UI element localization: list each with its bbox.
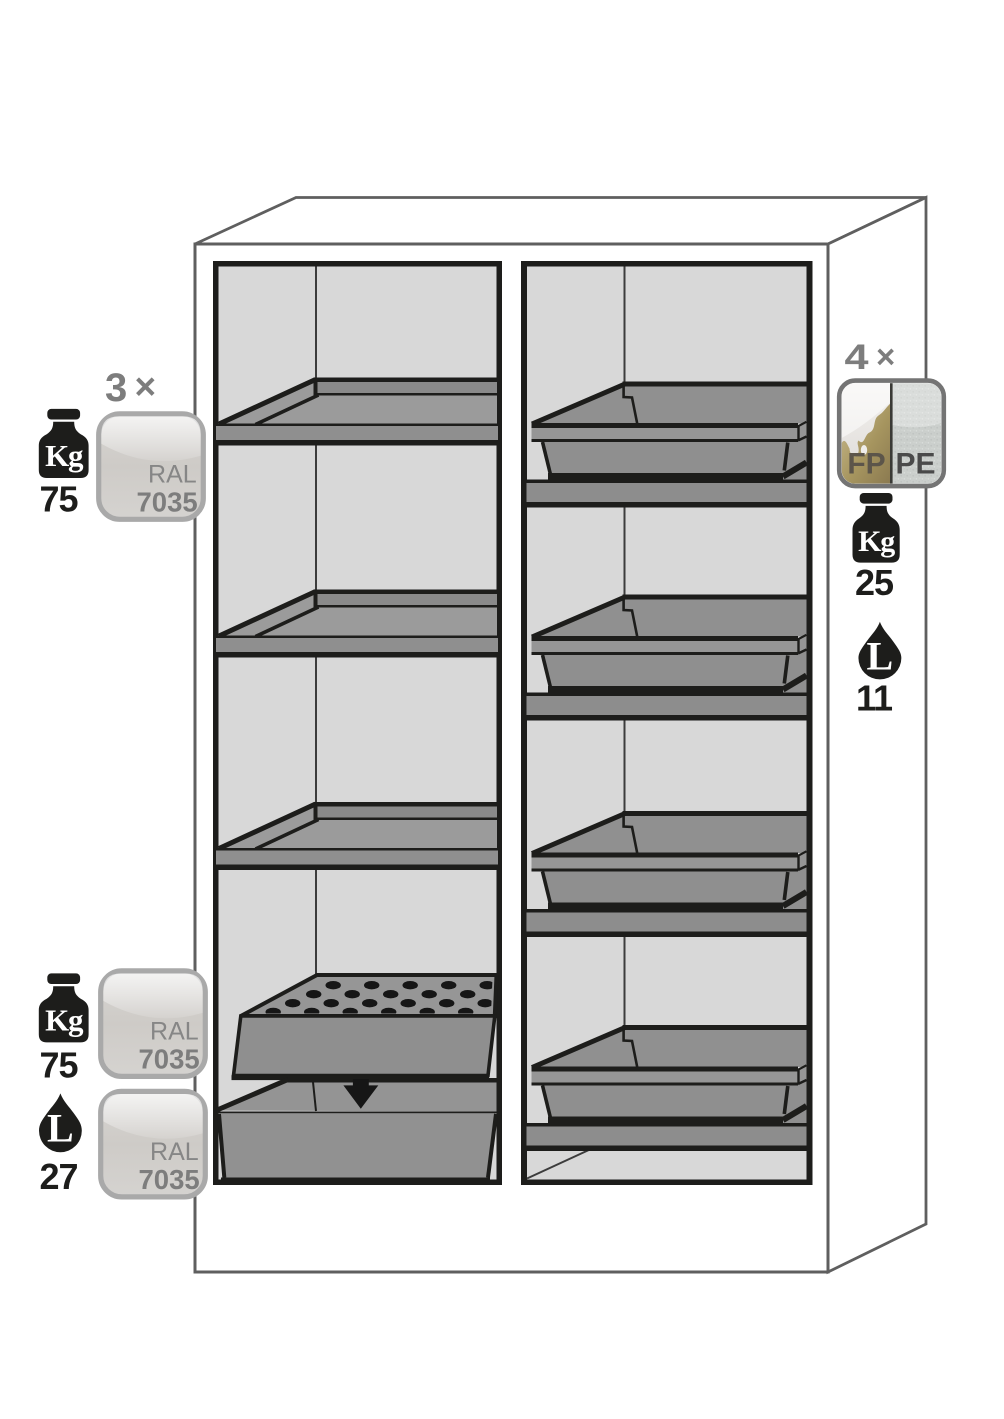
svg-text:4: 4 — [845, 338, 870, 377]
svg-text:Kg: Kg — [45, 438, 84, 473]
svg-text:RAL: RAL — [150, 1138, 199, 1166]
svg-text:RAL: RAL — [150, 1017, 199, 1045]
svg-text:7035: 7035 — [139, 1043, 200, 1074]
svg-text:FP: FP — [847, 448, 885, 481]
svg-text:Kg: Kg — [45, 1002, 84, 1037]
svg-text:75: 75 — [39, 1045, 78, 1086]
svg-text:7035: 7035 — [137, 486, 198, 517]
svg-text:PE: PE — [895, 448, 935, 481]
svg-text:L: L — [47, 1105, 74, 1150]
svg-text:7035: 7035 — [139, 1164, 200, 1195]
svg-text:25: 25 — [855, 562, 894, 603]
svg-text:×: × — [876, 338, 895, 375]
svg-text:×: × — [135, 366, 157, 407]
svg-text:75: 75 — [39, 479, 78, 520]
svg-text:Kg: Kg — [858, 525, 895, 558]
svg-text:27: 27 — [39, 1156, 77, 1197]
svg-text:L: L — [867, 634, 894, 679]
svg-text:RAL: RAL — [148, 460, 197, 488]
svg-text:3: 3 — [105, 366, 127, 410]
svg-text:11: 11 — [856, 678, 893, 719]
